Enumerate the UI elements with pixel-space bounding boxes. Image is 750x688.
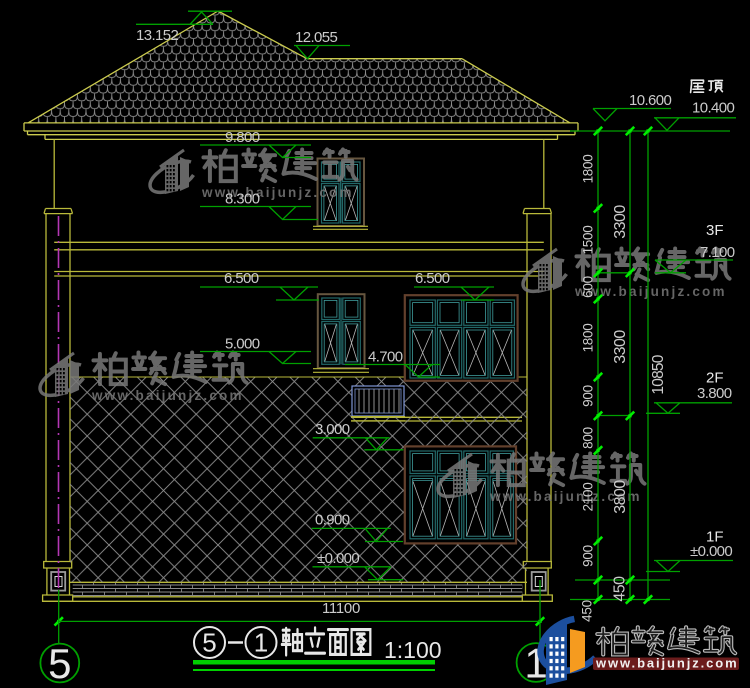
svg-text:11100: 11100 [322, 600, 360, 617]
svg-text:900: 900 [581, 545, 596, 567]
svg-text:3F: 3F [706, 222, 724, 239]
svg-text:1500: 1500 [581, 226, 596, 255]
svg-text:13.152: 13.152 [136, 27, 179, 44]
svg-text:10.600: 10.600 [629, 92, 672, 109]
svg-text:7.100: 7.100 [700, 244, 735, 261]
svg-text:1:100: 1:100 [384, 637, 442, 663]
svg-text:1: 1 [254, 628, 268, 658]
svg-text:900: 900 [581, 385, 596, 407]
svg-text:3300: 3300 [612, 205, 629, 239]
svg-text:1800: 1800 [581, 155, 596, 184]
svg-text:450: 450 [580, 600, 595, 622]
svg-text:2100: 2100 [581, 483, 596, 512]
svg-text:9.800: 9.800 [225, 129, 260, 146]
svg-text:3800: 3800 [612, 480, 629, 514]
svg-text:1800: 1800 [581, 324, 596, 353]
svg-text:3.800: 3.800 [697, 385, 732, 402]
svg-text:3300: 3300 [612, 330, 629, 364]
svg-text:3.000: 3.000 [315, 421, 350, 438]
svg-text:6.500: 6.500 [224, 270, 259, 287]
svg-text:6.500: 6.500 [415, 270, 450, 287]
svg-text:450: 450 [612, 576, 629, 602]
svg-text:800: 800 [581, 427, 596, 449]
svg-text:www.baijunjz.com: www.baijunjz.com [201, 185, 354, 200]
svg-text:600: 600 [581, 276, 596, 298]
svg-text:12.055: 12.055 [295, 29, 338, 46]
svg-text:5.000: 5.000 [225, 336, 260, 353]
svg-text:4.700: 4.700 [368, 349, 403, 366]
svg-text:±0.000: ±0.000 [317, 550, 359, 567]
svg-text:10850: 10850 [650, 354, 667, 394]
svg-text:0.900: 0.900 [315, 512, 350, 529]
svg-text:1F: 1F [706, 529, 724, 546]
svg-text:5: 5 [202, 628, 216, 658]
svg-text:±0.000: ±0.000 [690, 543, 732, 560]
svg-text:www.baijunjz.com: www.baijunjz.com [574, 284, 727, 299]
svg-text:www.baijunjz.com: www.baijunjz.com [595, 656, 739, 671]
svg-text:10.400: 10.400 [692, 99, 735, 116]
svg-text:8.300: 8.300 [225, 191, 260, 208]
svg-text:www.baijunjz.com: www.baijunjz.com [91, 388, 244, 403]
svg-text:5: 5 [48, 640, 71, 687]
svg-text:2F: 2F [706, 370, 724, 387]
